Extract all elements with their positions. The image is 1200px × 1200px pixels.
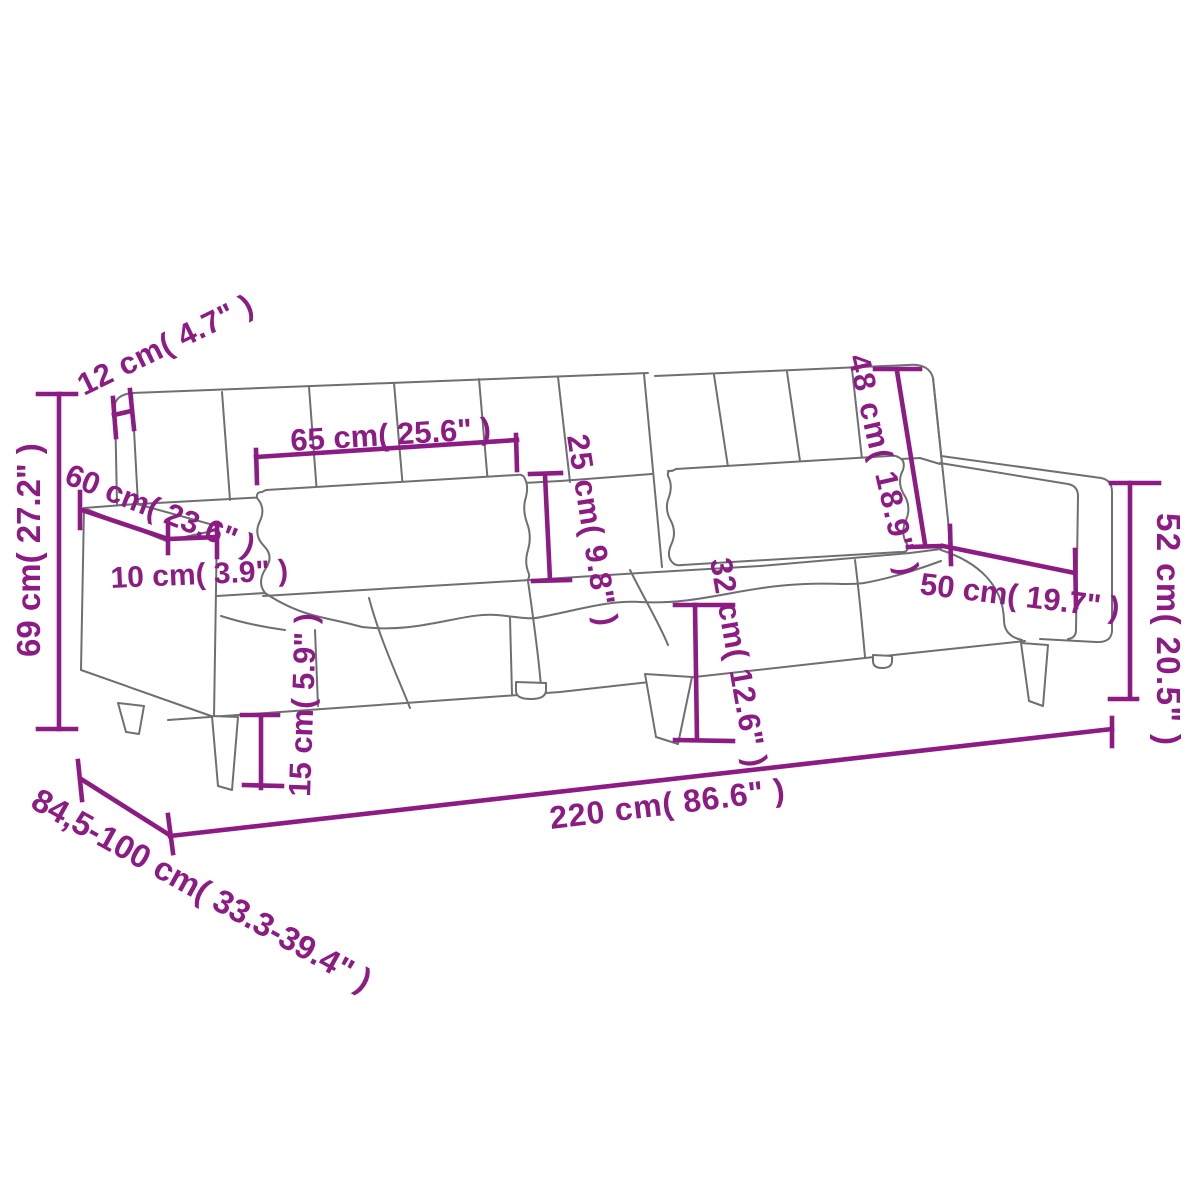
svg-text:69 cm( 27.2" ): 69 cm( 27.2" ) bbox=[10, 443, 47, 657]
svg-text:15 cm( 5.9" ): 15 cm( 5.9" ) bbox=[282, 613, 323, 798]
svg-text:52 cm( 20.5" ): 52 cm( 20.5" ) bbox=[1150, 513, 1187, 746]
